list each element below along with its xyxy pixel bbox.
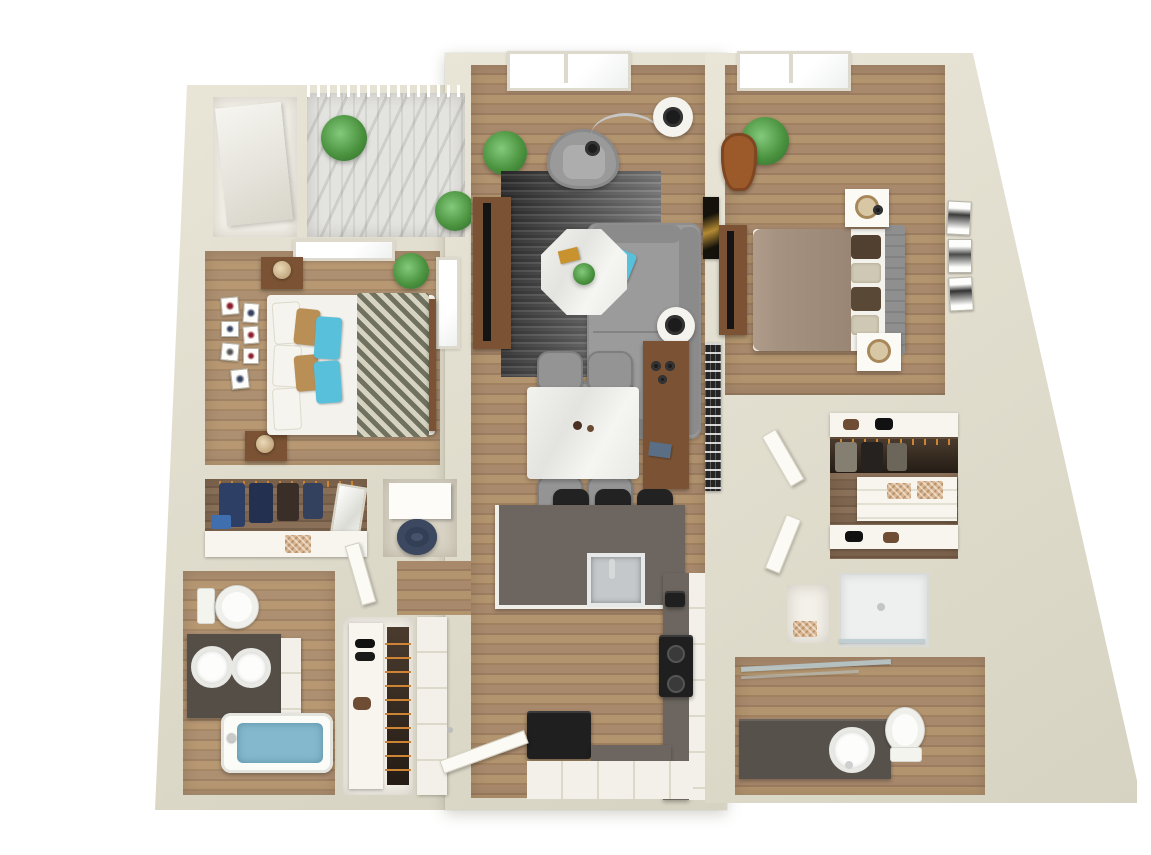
living-picture-window — [507, 51, 631, 91]
bed-footboard — [429, 299, 436, 431]
coffee-table-plant — [573, 263, 595, 285]
hanging-clothes — [887, 443, 907, 471]
bedroom-2-skylight — [737, 51, 851, 91]
hanging-clothes — [249, 483, 273, 523]
wall-frame — [946, 200, 972, 235]
vanity-2-faucet — [845, 761, 853, 769]
gallery-frame — [221, 321, 239, 337]
hanging-clothes — [861, 442, 883, 472]
vanity-drawers — [281, 638, 301, 716]
folded-item — [211, 515, 231, 529]
gallery-frame — [220, 296, 240, 316]
gallery-frame — [242, 302, 259, 323]
hanging-clothes — [835, 442, 857, 472]
hall-plant — [435, 191, 475, 231]
shoes-brown — [883, 532, 899, 543]
table-lamp-black — [663, 107, 683, 127]
gallery-frame — [220, 342, 240, 362]
screenshot-canvas — [0, 0, 1151, 855]
range-burner — [667, 645, 685, 663]
pillow-brown — [851, 287, 881, 311]
pillow-patterned — [851, 315, 879, 335]
arc-floor-lamp — [591, 113, 661, 158]
window-mullion — [789, 53, 793, 83]
table-lamp-gold — [867, 339, 891, 363]
bedroom-1-plant — [393, 253, 429, 289]
basket — [917, 481, 943, 499]
shoes-brown — [843, 419, 859, 430]
window-mullion — [564, 53, 568, 83]
dresser-tv — [727, 231, 734, 329]
chevron-duvet — [357, 293, 429, 437]
tv — [483, 203, 491, 341]
gold-wall-art — [703, 197, 719, 259]
bath-water — [237, 723, 323, 763]
balcony-railing — [307, 85, 465, 97]
hanging-clothes — [303, 483, 323, 519]
sideboard-decor — [665, 361, 675, 371]
hallway — [397, 561, 471, 615]
toilet-2-tank — [890, 747, 922, 762]
pillow-teal — [314, 360, 343, 404]
gallery-frame — [242, 325, 259, 344]
shoes-black — [845, 531, 863, 542]
patterned-wall-art — [705, 343, 721, 491]
shoes-black — [355, 639, 375, 648]
shoes-black — [355, 652, 375, 661]
table-lamp — [256, 435, 274, 453]
item-brown — [353, 697, 371, 710]
leather-accent-chair — [721, 133, 757, 191]
vanity-sink — [231, 648, 271, 688]
vanity-sink — [191, 646, 233, 688]
basket — [285, 535, 311, 553]
shower-drain — [877, 603, 885, 611]
nightstand-decor — [873, 205, 883, 215]
countertop-appliance — [665, 591, 685, 607]
pillow-teal — [314, 316, 343, 360]
floor-lamp-shade — [585, 141, 600, 156]
table-lamp — [273, 261, 291, 279]
pillow-patterned — [851, 263, 881, 283]
sink-faucet — [609, 559, 615, 579]
counter-bottom-top — [591, 745, 671, 761]
dining-table-items — [587, 425, 594, 432]
storage-unit — [215, 102, 293, 226]
gallery-frame — [243, 348, 259, 364]
refrigerator — [527, 711, 591, 759]
dining-table — [527, 387, 639, 479]
taupe-duvet — [753, 229, 851, 351]
tv-console — [473, 197, 511, 349]
island-sink — [587, 553, 645, 607]
sideboard-book — [648, 442, 672, 459]
bedroom-1-balcony-window — [293, 239, 395, 261]
toilet-bowl — [215, 585, 259, 629]
hanging-clothes — [277, 483, 299, 521]
wall-frame — [948, 239, 972, 273]
shower-glass-panel — [839, 639, 925, 643]
basket — [887, 483, 911, 499]
dining-table-items — [573, 421, 582, 430]
toilet-tank — [197, 588, 215, 624]
living-plant — [483, 131, 527, 175]
range-burner — [667, 675, 685, 693]
water-heater — [397, 519, 437, 555]
basket — [793, 621, 817, 637]
table-lamp-black — [665, 315, 685, 335]
utility-cabinet — [389, 483, 451, 519]
entry-door-handle — [447, 727, 453, 733]
walk-in-shower — [839, 573, 929, 647]
pillow-brown — [851, 235, 881, 259]
counter-bottom-cabinets — [527, 761, 693, 799]
pillow — [272, 387, 302, 430]
floor-plan — [135, 45, 1140, 810]
entry-hangers — [385, 631, 411, 781]
gallery-frame — [230, 368, 250, 390]
wall-frame — [948, 276, 974, 311]
sideboard-decor — [651, 361, 661, 371]
shoes-black — [875, 418, 893, 430]
tub-faucet — [227, 733, 236, 742]
sideboard-decor — [658, 375, 667, 384]
bedroom-1-passthrough-window — [436, 257, 460, 349]
balcony-plant — [321, 115, 367, 161]
